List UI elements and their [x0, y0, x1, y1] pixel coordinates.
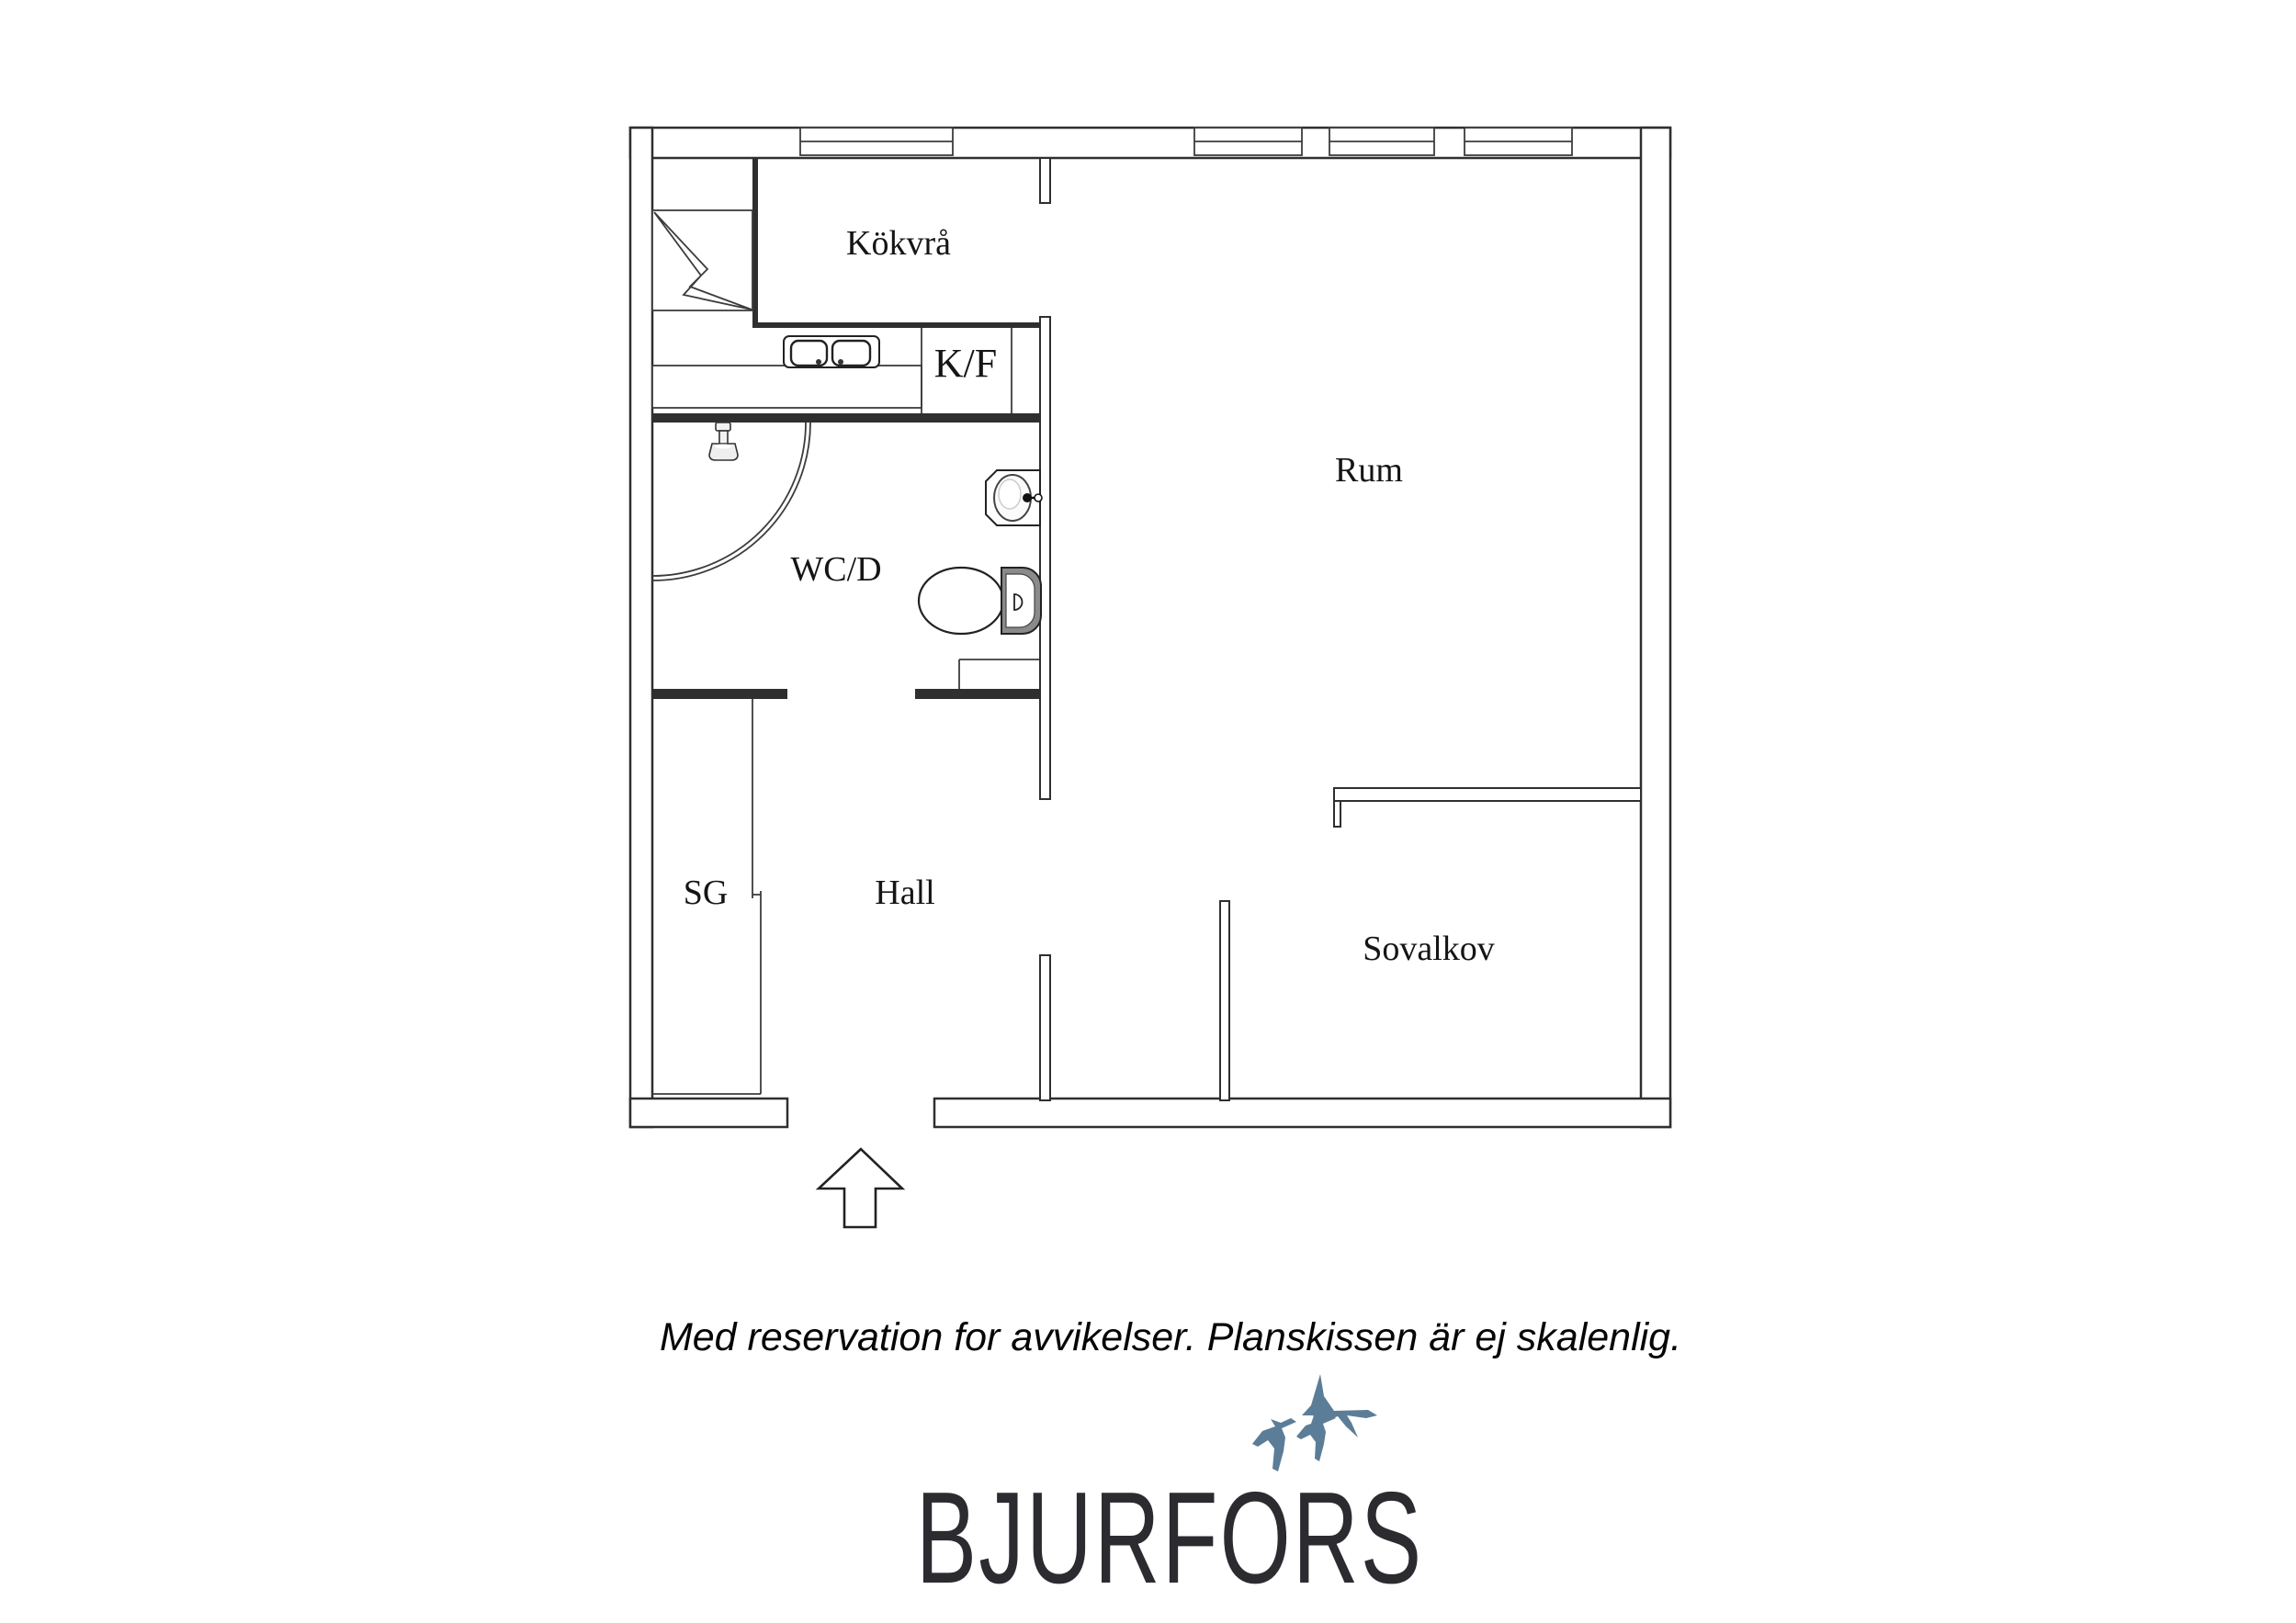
window: [1329, 128, 1434, 155]
window: [800, 128, 953, 155]
wall-hall-sovalkov: [1040, 955, 1050, 1100]
wall-left: [630, 128, 652, 1127]
wall-wcd-bottom-left: [652, 689, 787, 699]
bathroom-fixtures: [652, 423, 1042, 634]
room-label-sovalkov: Sovalkov: [1363, 930, 1495, 968]
floorplan-page: Kökvrå K/F Rum WC/D SG Hall Sovalkov Med…: [0, 0, 2296, 1623]
room-label-wcd: WC/D: [790, 550, 881, 589]
toilet-icon: [919, 568, 1041, 634]
stove-icon: [652, 210, 752, 310]
brand-logo-text: BJURFORS: [916, 1464, 1423, 1610]
wall-kitchenblock-rum: [1040, 317, 1050, 799]
shower-icon: [709, 423, 738, 460]
entrance-arrow-icon: [819, 1149, 902, 1227]
floorplan-drawing: Kökvrå K/F Rum WC/D SG Hall Sovalkov Med…: [0, 0, 2296, 1623]
wall-kokvra-left: [752, 158, 758, 328]
washbasin-icon: [986, 470, 1042, 525]
kitchen-counter: [652, 366, 922, 408]
kitchen-sink-icon: [784, 336, 879, 367]
room-label-kf: K/F: [934, 341, 997, 386]
room-label-kokvra: Kökvrå: [846, 224, 951, 263]
wall-kitchen-wcd: [652, 413, 1040, 423]
window: [1465, 128, 1572, 155]
exterior-walls: [630, 128, 1670, 1127]
wall-stub-kokvra-rum: [1040, 158, 1050, 203]
wall-right: [1641, 128, 1670, 1127]
disclaimer-text: Med reservation for avvikelser. Planskis…: [660, 1315, 1681, 1359]
partition-walls: [1040, 158, 1641, 1100]
wall-bottom-left: [630, 1099, 787, 1127]
room-label-sg: SG: [684, 873, 729, 912]
wall-entry-sovalkov: [1220, 901, 1229, 1100]
bird-icon: [1252, 1418, 1296, 1471]
brand-logo: BJURFORS: [916, 1374, 1423, 1610]
wall-kokvra-bottom: [752, 322, 1040, 328]
room-label-hall: Hall: [875, 873, 934, 912]
window: [1194, 128, 1302, 155]
wall-rum-sovalkov: [1334, 788, 1641, 801]
wall-bottom-right: [934, 1099, 1670, 1127]
birds-icon: [1252, 1374, 1377, 1471]
wall-wcd-bottom-right: [915, 689, 1040, 699]
room-label-rum: Rum: [1335, 451, 1403, 490]
